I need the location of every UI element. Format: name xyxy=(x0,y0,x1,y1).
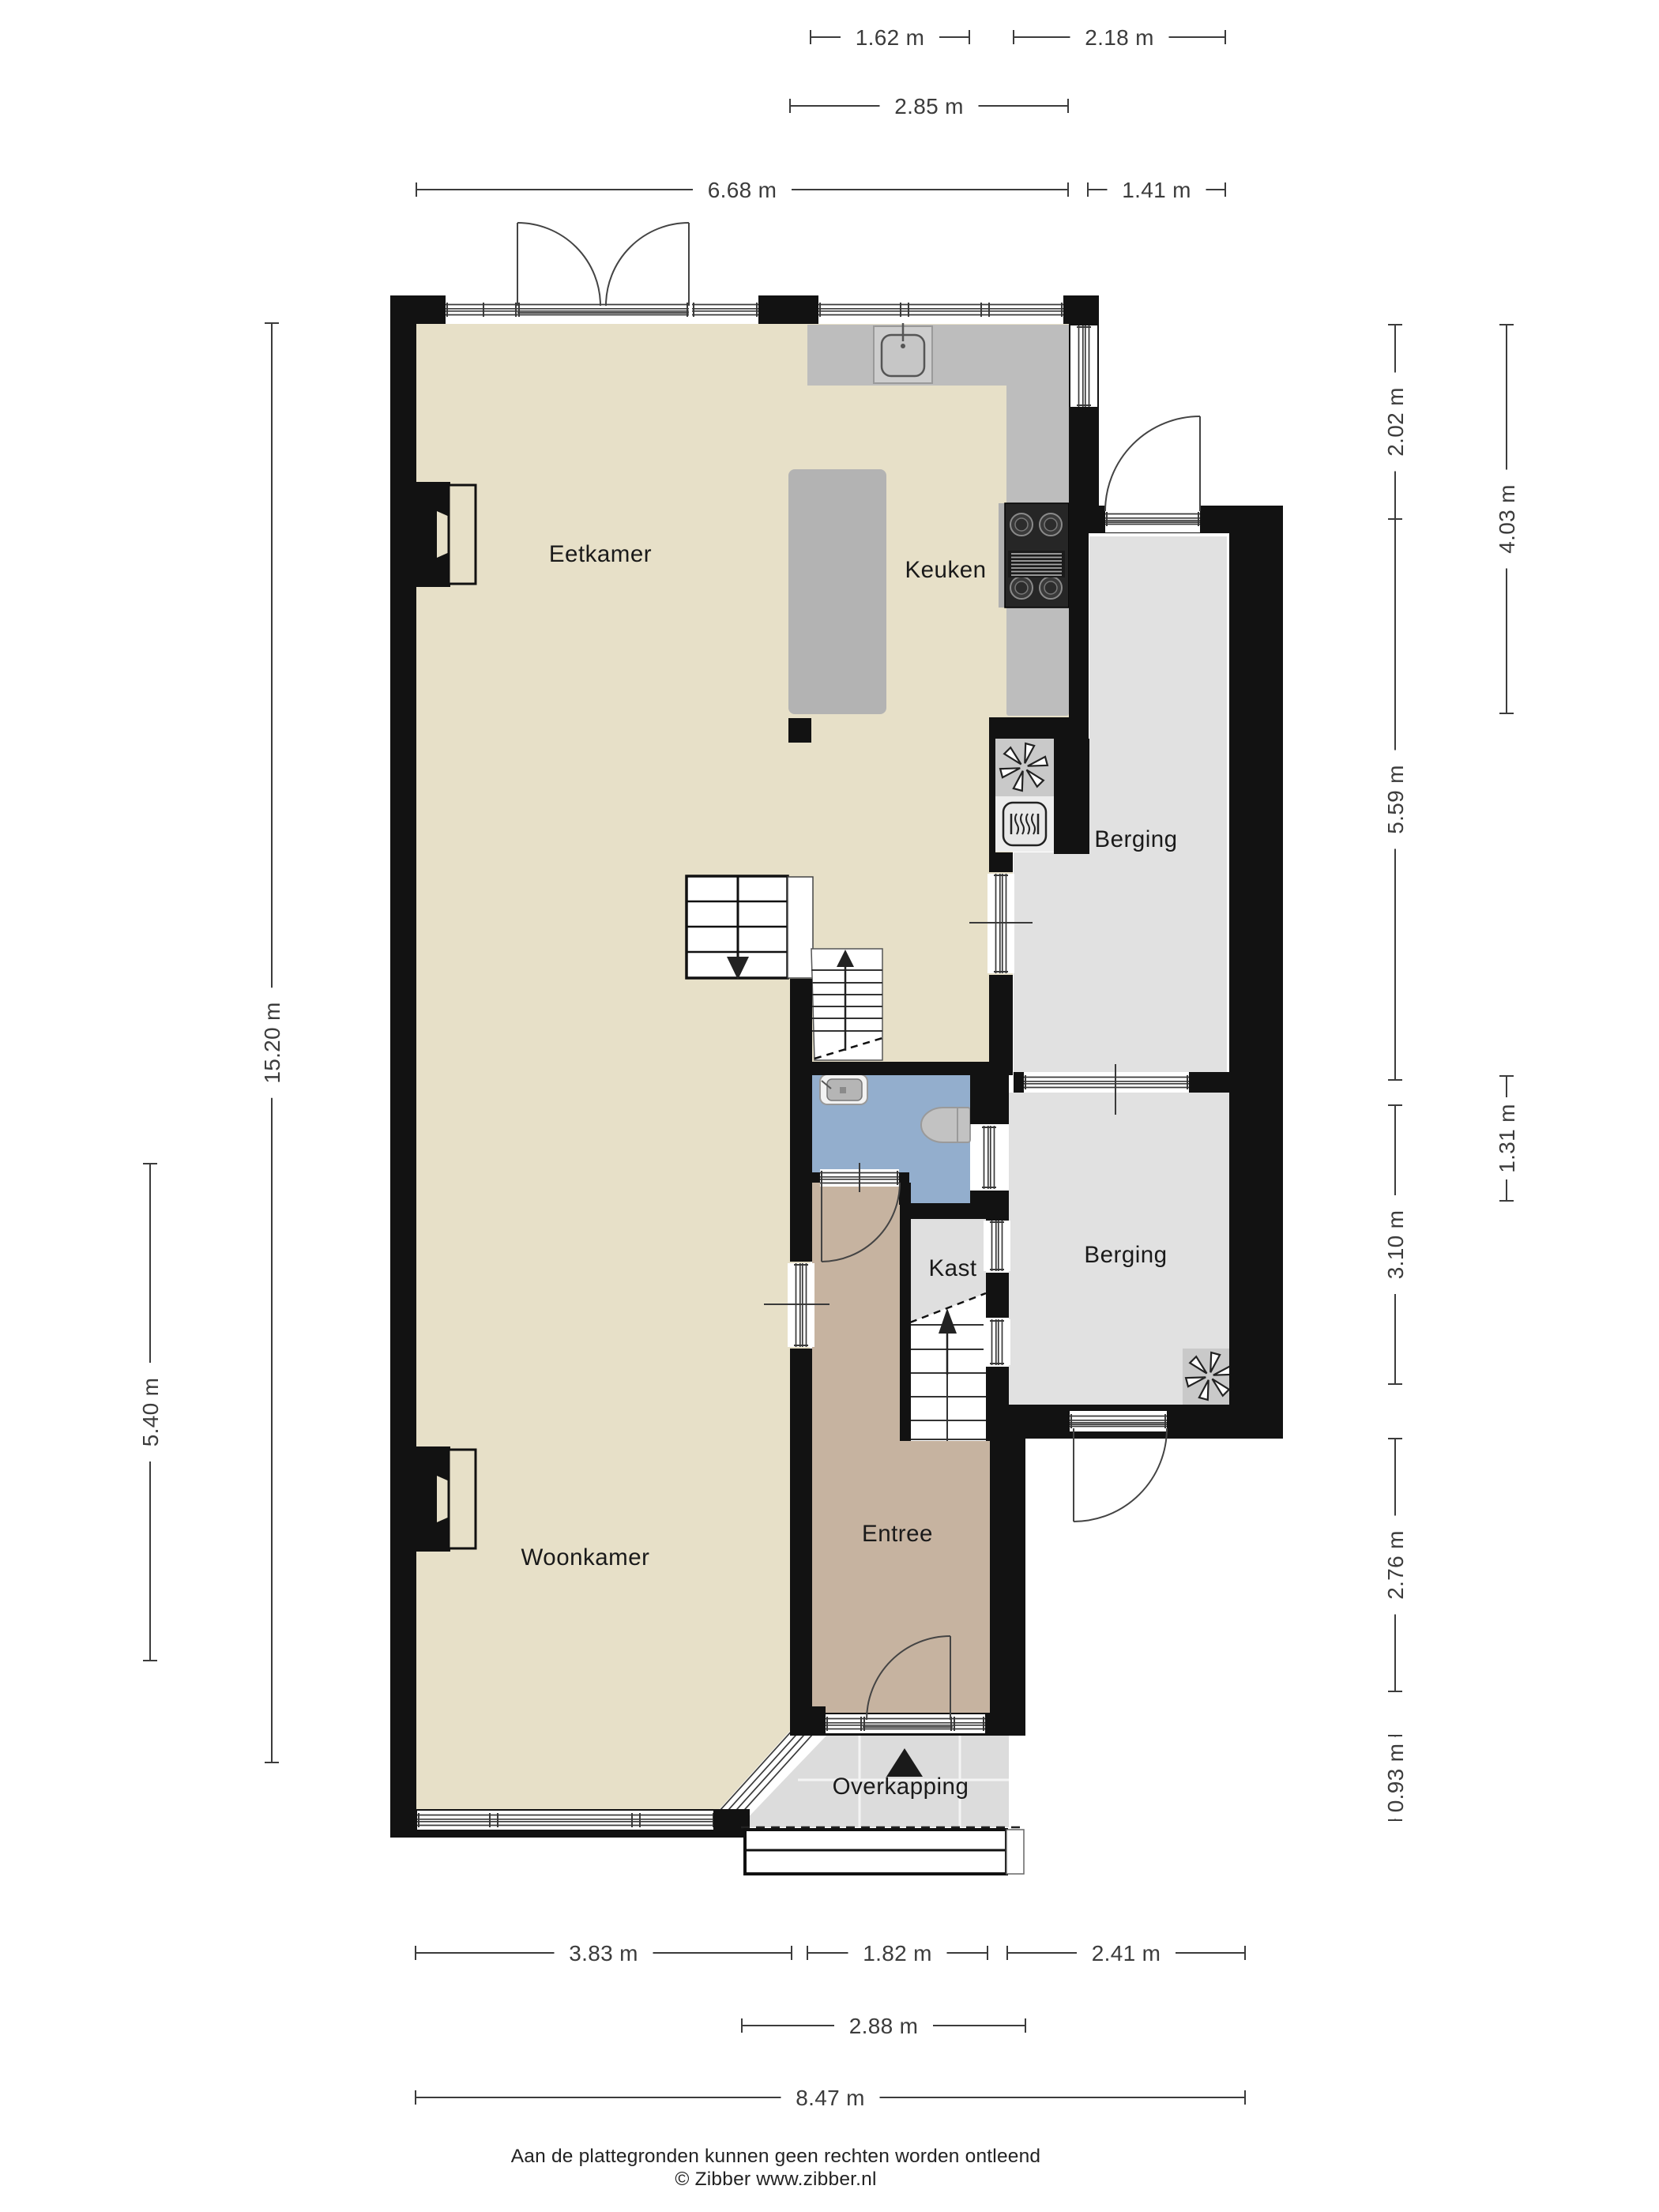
svg-text:2.18 m: 2.18 m xyxy=(1085,25,1153,50)
svg-text:Overkapping: Overkapping xyxy=(833,1774,969,1800)
svg-text:1.62 m: 1.62 m xyxy=(856,25,924,50)
svg-text:2.85 m: 2.85 m xyxy=(894,94,963,118)
svg-text:4.03 m: 4.03 m xyxy=(1495,484,1519,553)
svg-text:2.76 m: 2.76 m xyxy=(1383,1530,1408,1599)
svg-text:Entree: Entree xyxy=(862,1521,933,1547)
svg-text:1.82 m: 1.82 m xyxy=(863,1941,931,1966)
svg-text:3.10 m: 3.10 m xyxy=(1383,1210,1408,1279)
svg-text:2.41 m: 2.41 m xyxy=(1092,1941,1161,1966)
svg-text:Aan de plattegronden kunnen ge: Aan de plattegronden kunnen geen rechten… xyxy=(511,2146,1041,2167)
svg-text:1.31 m: 1.31 m xyxy=(1495,1104,1519,1172)
svg-text:Kast: Kast xyxy=(928,1255,976,1281)
svg-text:Berging: Berging xyxy=(1084,1242,1167,1268)
svg-text:Woonkamer: Woonkamer xyxy=(521,1544,650,1571)
svg-text:2.88 m: 2.88 m xyxy=(849,2014,918,2038)
svg-text:© Zibber www.zibber.nl: © Zibber www.zibber.nl xyxy=(675,2169,876,2190)
svg-text:5.40 m: 5.40 m xyxy=(138,1378,163,1446)
svg-text:15.20 m: 15.20 m xyxy=(260,1002,284,1083)
svg-text:1.41 m: 1.41 m xyxy=(1122,178,1191,202)
svg-text:3.83 m: 3.83 m xyxy=(569,1941,638,1966)
svg-text:Berging: Berging xyxy=(1094,826,1177,852)
svg-text:Eetkamer: Eetkamer xyxy=(549,541,652,567)
svg-text:5.59 m: 5.59 m xyxy=(1383,765,1408,833)
svg-text:Keuken: Keuken xyxy=(905,557,986,583)
svg-text:8.47 m: 8.47 m xyxy=(796,2086,864,2110)
svg-text:0.93 m: 0.93 m xyxy=(1383,1744,1408,1812)
svg-text:6.68 m: 6.68 m xyxy=(708,178,777,202)
svg-text:2.02 m: 2.02 m xyxy=(1383,387,1408,456)
